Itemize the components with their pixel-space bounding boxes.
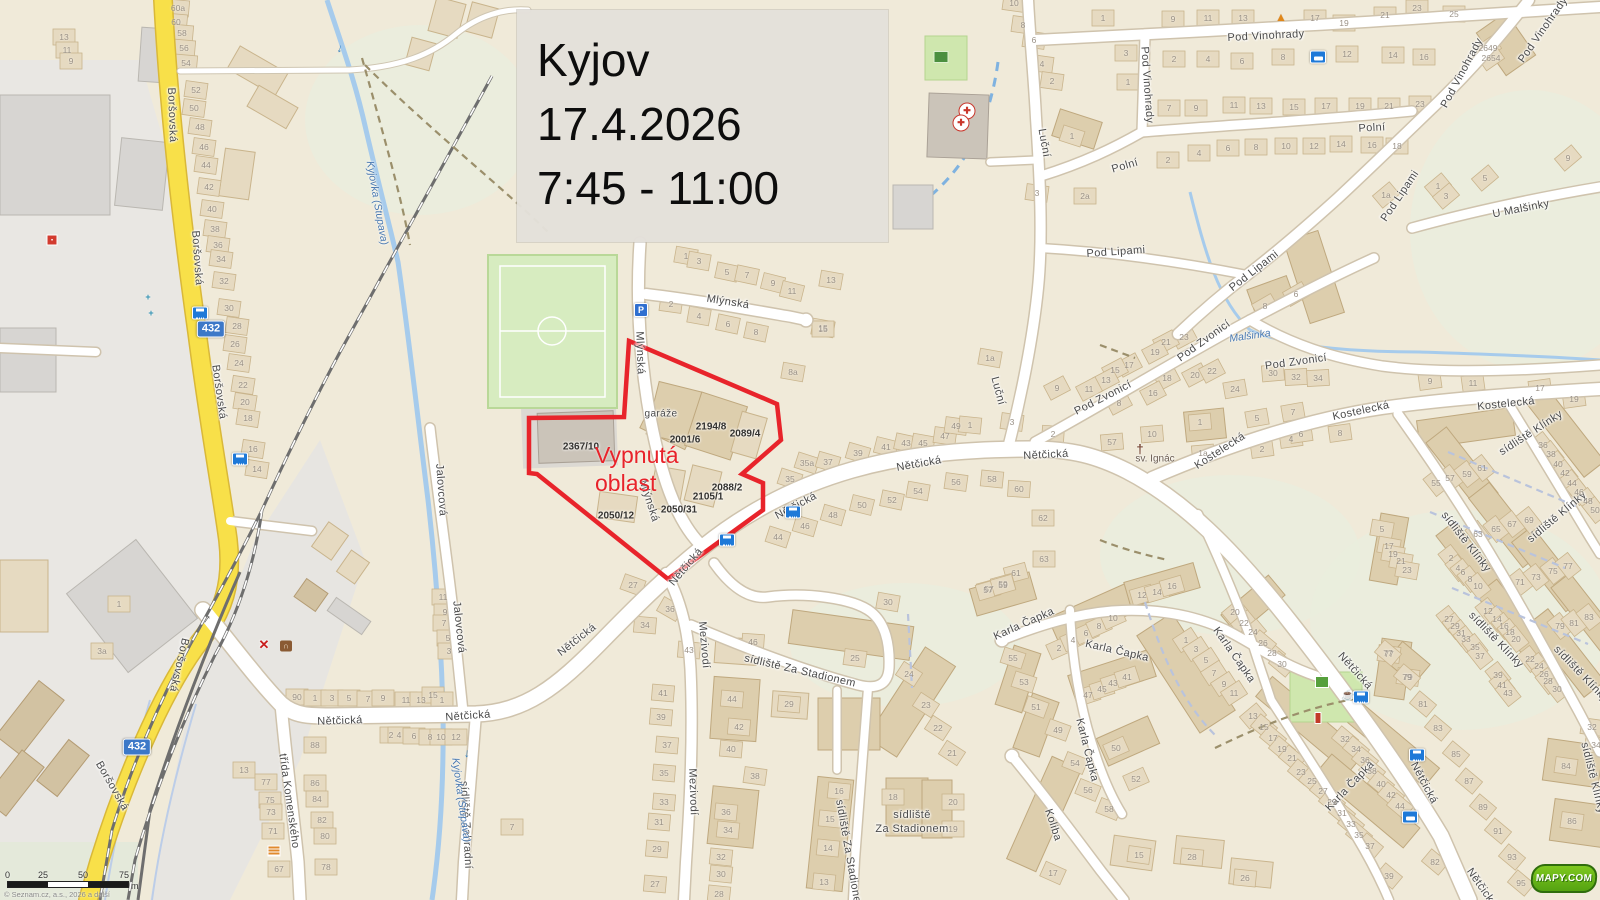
scale-tick: 50 (78, 870, 88, 880)
title-overlay: Kyjov 17.4.2026 7:45 - 11:00 (517, 10, 888, 242)
copyright-attribution: © Seznam.cz, a.s., 2026 a další (4, 890, 110, 899)
bus-stop-icon[interactable] (232, 453, 248, 466)
warning-icon: ▲ (1275, 10, 1287, 24)
landmark-icon[interactable]: ∩ (280, 641, 292, 652)
scale-unit: m (131, 881, 139, 891)
road-432-shield: 432 (123, 739, 151, 756)
title-time-range: 7:45 - 11:00 (537, 156, 888, 220)
scale-bar-track (8, 882, 128, 887)
parking-icon[interactable]: P (634, 303, 648, 317)
works-icon (268, 846, 281, 857)
scale-tick: 25 (38, 870, 48, 880)
map-viewport[interactable]: BoršovskáBoršovskáBoršovskáBoršovskáBorš… (0, 0, 1600, 900)
flow-arrow-icon: ↓ (463, 746, 470, 760)
mapy-logo[interactable]: MAPY.COM (1530, 864, 1598, 893)
utility-icon: + (145, 292, 150, 302)
title-city: Kyjov (537, 28, 888, 92)
hotel-icon[interactable] (1310, 51, 1326, 64)
bus-stop-icon[interactable] (785, 506, 801, 519)
sportsground-icon[interactable] (934, 51, 949, 63)
playground-icon[interactable] (1315, 676, 1329, 688)
cafe-icon[interactable]: ☕ (1342, 690, 1354, 701)
monument-icon[interactable] (1315, 712, 1322, 724)
outage-area-label: Vypnutá oblast (595, 441, 679, 497)
road-432-shield: 432 (197, 321, 225, 338)
level-crossing-icon: ✕ (259, 637, 270, 653)
title-date: 17.4.2026 (537, 92, 888, 156)
bus-stop-icon[interactable] (1409, 749, 1425, 762)
utility-icon: + (148, 308, 153, 318)
bus-stop-icon[interactable] (192, 307, 208, 320)
scale-tick: 0 (5, 870, 10, 880)
shop-icon[interactable]: ▪ (47, 235, 58, 246)
scale-tick: 75 (119, 870, 129, 880)
chapel-icon[interactable]: † (1136, 442, 1143, 457)
sports-field (488, 255, 617, 408)
hospital-cross-icon[interactable]: ✚ (953, 115, 970, 132)
hotel-icon[interactable] (1402, 811, 1418, 824)
bus-stop-icon[interactable] (1353, 691, 1369, 704)
bus-stop-icon[interactable] (719, 534, 735, 547)
